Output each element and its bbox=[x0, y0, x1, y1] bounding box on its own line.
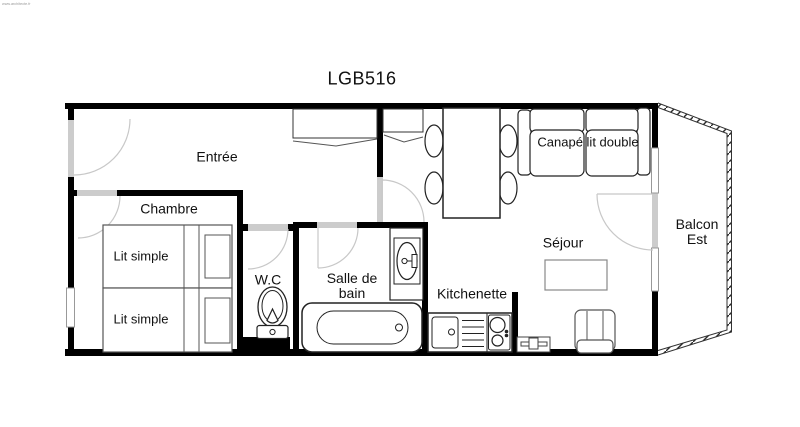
bathtub-drain bbox=[396, 324, 403, 331]
wall-wc-top-right bbox=[288, 224, 293, 231]
wall-right-lower bbox=[652, 291, 658, 356]
plan-title: LGB516 bbox=[327, 72, 396, 87]
balcon-line1: Balcon bbox=[676, 216, 719, 232]
watermark: www.architecte.fr bbox=[2, 2, 31, 7]
wall-chambre-right bbox=[237, 190, 243, 353]
pillow-bottom-bed bbox=[205, 298, 230, 343]
sejour-door-arc bbox=[382, 180, 424, 222]
balcony-door-arc bbox=[597, 194, 653, 250]
dining-chair bbox=[425, 172, 443, 204]
sofa-armrest-right bbox=[637, 108, 650, 175]
wall-chambre-top-right bbox=[117, 190, 243, 196]
floor-plan-drawing bbox=[0, 0, 800, 427]
dining-set bbox=[425, 108, 517, 218]
salle-de-bain-line2: bain bbox=[339, 285, 365, 301]
coffee-table bbox=[545, 260, 607, 290]
toilet bbox=[257, 287, 288, 339]
beds bbox=[103, 225, 232, 352]
room-label-kitchenette: Kitchenette bbox=[437, 287, 507, 302]
sejour-window-lower bbox=[652, 248, 659, 291]
sejour-furniture bbox=[517, 260, 615, 353]
entrance-door-opening bbox=[68, 120, 74, 177]
wc-duct-block bbox=[237, 337, 290, 353]
wall-right-upper bbox=[652, 103, 658, 148]
wall-wc-top-left bbox=[243, 224, 248, 231]
bathtub-inner bbox=[317, 311, 408, 344]
furniture-label-canape: Canapé lit double bbox=[537, 135, 638, 150]
dining-chair bbox=[499, 125, 517, 157]
wardrobe-entree-rail bbox=[293, 139, 377, 146]
armchair-cushion bbox=[577, 340, 613, 353]
pillow-top-bed bbox=[205, 235, 230, 278]
sink-drain bbox=[449, 329, 455, 335]
chambre-window bbox=[67, 288, 75, 327]
room-label-chambre: Chambre bbox=[140, 202, 198, 217]
balcony-door-opening bbox=[652, 193, 658, 248]
wall-chambre-top-left bbox=[68, 190, 77, 196]
dining-table bbox=[443, 108, 500, 218]
wc-door-opening bbox=[248, 224, 288, 231]
dining-chair bbox=[499, 172, 517, 204]
wall-sdb-top-left bbox=[299, 222, 317, 228]
wardrobe-sejour bbox=[383, 109, 423, 132]
wardrobe-entree bbox=[293, 109, 377, 138]
tv-base bbox=[529, 338, 538, 349]
chambre-door-opening bbox=[77, 190, 117, 196]
sofa-back-left bbox=[530, 109, 584, 132]
furniture-label-lit-simple-bottom: Lit simple bbox=[114, 312, 169, 327]
sofa-armrest-left bbox=[518, 110, 531, 175]
wall-sdb-top-right bbox=[357, 222, 428, 228]
wardrobes bbox=[293, 109, 423, 146]
room-label-salle-de-bain: Salle de bain bbox=[327, 271, 378, 301]
wardrobe-sejour-rail bbox=[384, 135, 423, 142]
hob-knob bbox=[505, 334, 508, 337]
hob-knob bbox=[505, 330, 508, 333]
wall-wc-sdb-divider bbox=[293, 222, 299, 353]
wall-entree-sejour bbox=[377, 107, 383, 177]
room-label-balcon-est: Balcon Est bbox=[676, 217, 719, 247]
washbasin-tap-handle bbox=[412, 255, 417, 268]
washbasin-tap bbox=[402, 258, 407, 263]
balcon-line2: Est bbox=[687, 231, 707, 247]
toilet-tank-button bbox=[270, 329, 275, 334]
wall-top bbox=[65, 103, 658, 109]
hob-burner-small bbox=[492, 335, 503, 346]
floor-plan-page: www.architecte.fr LGB516 Entrée Chambre … bbox=[0, 0, 800, 427]
room-label-sejour: Séjour bbox=[543, 236, 583, 251]
room-label-wc: W.C bbox=[255, 273, 281, 288]
furniture-label-lit-simple-top: Lit simple bbox=[114, 249, 169, 264]
sdb-door-arc bbox=[318, 228, 358, 268]
dining-chair bbox=[425, 125, 443, 157]
salle-de-bain-line1: Salle de bbox=[327, 270, 378, 286]
hob-burner-large bbox=[490, 318, 505, 333]
sofa-back-right bbox=[586, 109, 638, 132]
room-label-entree: Entrée bbox=[196, 150, 237, 165]
kitchenette-unit bbox=[428, 313, 512, 352]
sdb-door-opening bbox=[317, 222, 357, 228]
entrance-door-arc bbox=[74, 119, 130, 175]
wall-left-upper bbox=[68, 103, 74, 120]
wc-door-arc bbox=[248, 229, 288, 269]
sejour-window-upper bbox=[652, 148, 659, 193]
